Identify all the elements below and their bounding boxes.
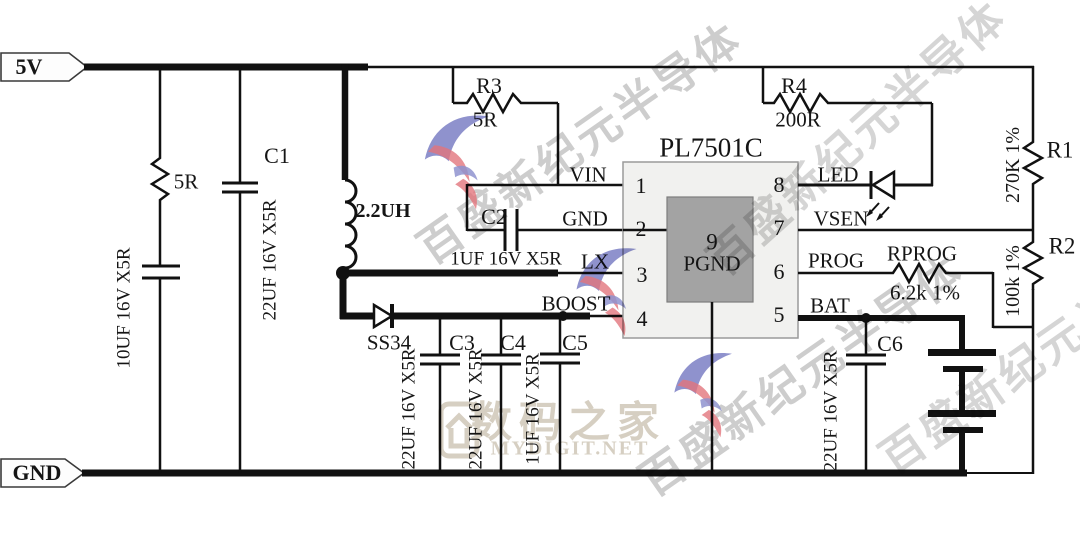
label-l1-value: 2.2UH (356, 201, 411, 221)
label-rprog-value: 6.2k 1% (890, 283, 960, 304)
label-c4-ref: C4 (500, 332, 526, 354)
label-c6-value: 22UF 16V X5R (822, 350, 841, 471)
label-pin-prog: PROG (808, 251, 864, 272)
input-filter (142, 66, 258, 473)
ic-title: PL7501C (659, 135, 763, 162)
label-pin-vin: VIN (569, 165, 606, 186)
label-c6-ref: C6 (877, 333, 903, 355)
label-cin-value: 10UF 16V X5R (115, 247, 134, 368)
label-pin-led: LED (818, 165, 859, 186)
schematic-canvas (0, 0, 1080, 551)
label-pin-lx: LX (581, 252, 609, 273)
vcc-flag-label: 5V (16, 56, 43, 78)
schematic-page: 5V GND 5R 10UF 16V X5R C1 22UF 16V X5R 2… (0, 0, 1080, 551)
pin-number-5: 5 (774, 304, 785, 326)
ic-body (623, 162, 798, 474)
pin-number-8: 8 (774, 174, 785, 196)
ic-pad-number: 9 (706, 231, 718, 254)
label-c1-ref: C1 (264, 145, 290, 167)
label-pin-bat: BAT (810, 296, 850, 317)
label-r4-ref: R4 (781, 75, 807, 97)
label-r2-ref: R2 (1049, 235, 1076, 258)
pin-number-3: 3 (637, 264, 648, 286)
label-c4-value: 22UF 16V X5R (467, 348, 486, 469)
battery-plate-long (928, 410, 996, 417)
label-pin-boost: BOOST (542, 294, 611, 315)
resistor-rin-symbol (152, 153, 168, 212)
resistor-r3-symbol (453, 94, 558, 112)
label-rin-value: 5R (174, 172, 199, 193)
resistor-r2-symbol (1024, 237, 1042, 290)
led-symbol (873, 172, 894, 198)
pin-number-1: 1 (636, 175, 647, 197)
label-c3-value: 22UF 16V X5R (400, 348, 419, 469)
label-r2-value: 100k 1% (1003, 245, 1023, 317)
pin-number-4: 4 (637, 308, 648, 330)
label-rprog-ref: RPROG (887, 244, 957, 265)
label-pin-vsen: VSEN (814, 209, 869, 230)
resistor-r1-symbol (1024, 137, 1042, 190)
gnd-flag-label: GND (13, 462, 62, 484)
label-r3-value: 5R (473, 110, 498, 131)
label-c1-value: 22UF 16V X5R (261, 199, 280, 320)
pin-number-7: 7 (774, 217, 785, 239)
inductor-l1-coil (345, 180, 356, 268)
pin-number-6: 6 (774, 261, 785, 283)
diode-ss34-symbol (374, 305, 392, 327)
label-pin-gnd: GND (562, 209, 608, 230)
label-c5-ref: C5 (562, 332, 588, 354)
label-c5-value: 1UF 16V X5R (524, 353, 543, 465)
label-r1-value: 270K 1% (1003, 127, 1023, 203)
label-r4-value: 200R (775, 110, 821, 131)
label-c2-ref: C2 (481, 206, 507, 228)
inductor-l1 (336, 64, 356, 280)
label-c2-value: 1UF 16V X5R (450, 250, 562, 269)
pin-number-2: 2 (636, 218, 647, 240)
resistor-rprog-symbol (888, 264, 993, 282)
vcc-flag (1, 53, 87, 81)
ic-pad-name: PGND (683, 254, 740, 275)
label-r3-ref: R3 (476, 75, 502, 97)
label-r1-ref: R1 (1047, 139, 1074, 162)
battery-plate-long (928, 349, 996, 356)
